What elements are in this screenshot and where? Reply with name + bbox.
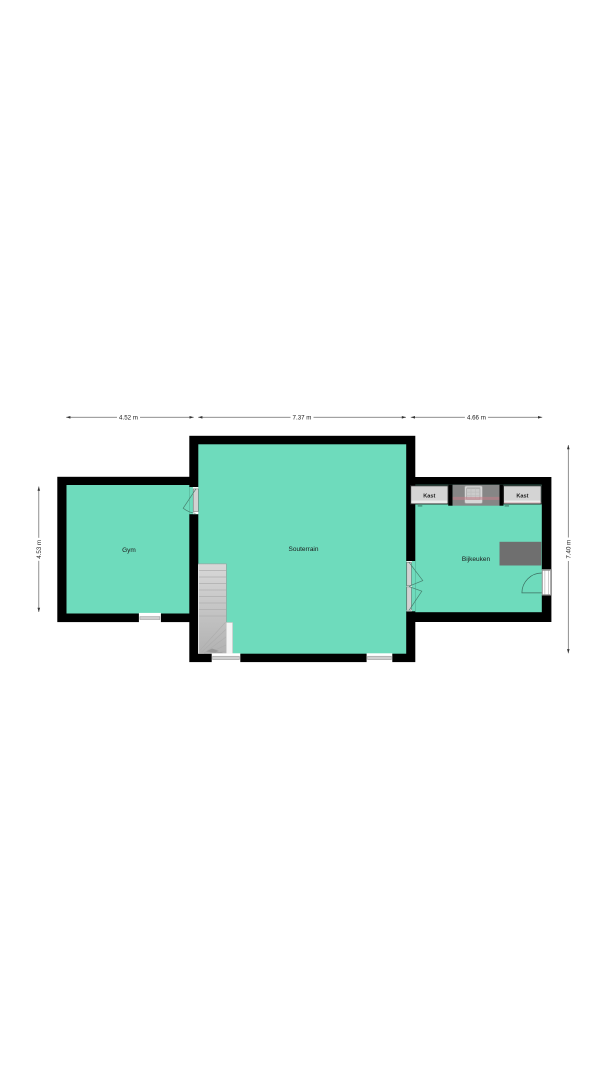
svg-text:4.66 m: 4.66 m — [467, 415, 486, 422]
svg-text:7.37 m: 7.37 m — [293, 415, 312, 422]
svg-text:Gym: Gym — [122, 547, 136, 554]
svg-text:Kast: Kast — [423, 493, 435, 499]
svg-text:Bijkeuken: Bijkeuken — [462, 556, 491, 563]
svg-text:4.52 m: 4.52 m — [119, 415, 138, 422]
svg-text:Souterrain: Souterrain — [289, 546, 319, 553]
svg-text:7.40 m: 7.40 m — [566, 540, 573, 559]
svg-text:Kast: Kast — [516, 493, 528, 499]
svg-text:4.53 m: 4.53 m — [36, 540, 43, 559]
